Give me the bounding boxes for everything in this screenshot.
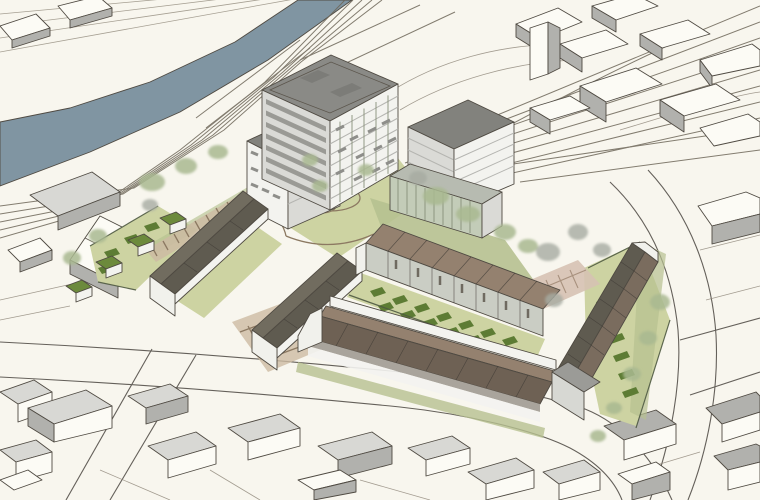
sketch-svg bbox=[0, 0, 760, 500]
masterplan-sketch bbox=[0, 0, 760, 500]
